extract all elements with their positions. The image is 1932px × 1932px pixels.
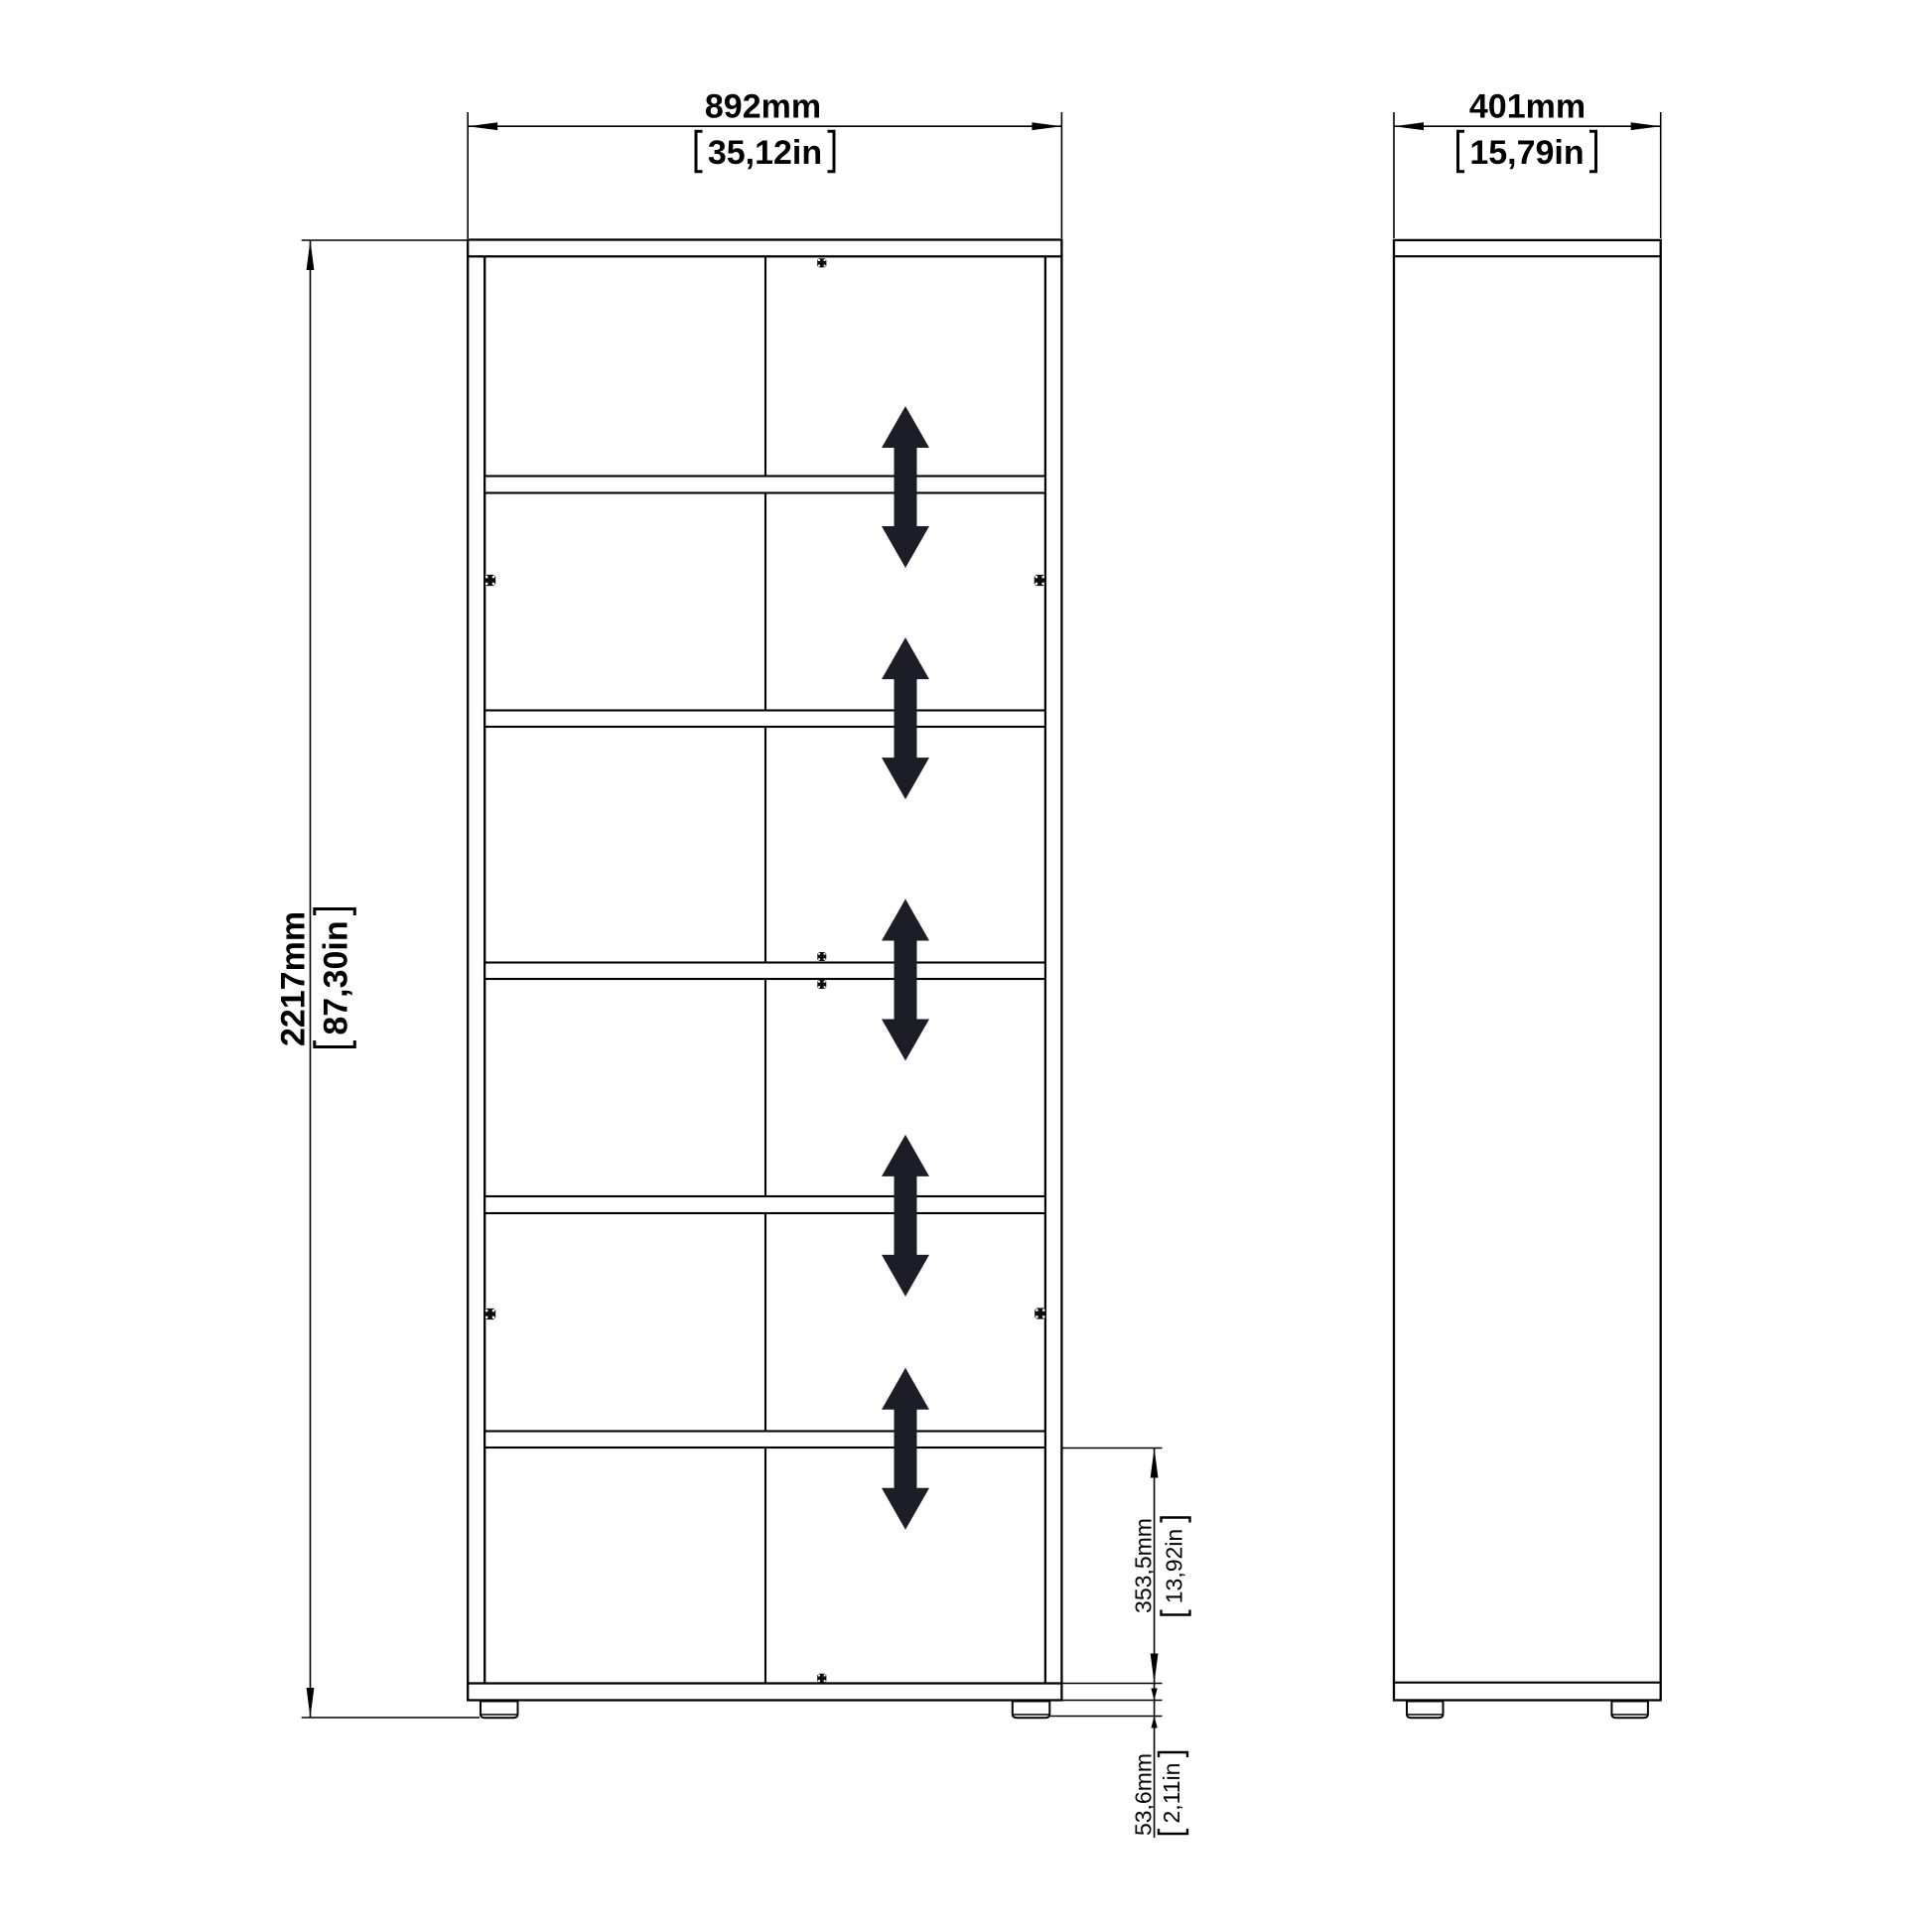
svg-text:53,6mm: 53,6mm [1131,1753,1157,1836]
svg-text:892mm: 892mm [705,88,821,126]
svg-text:15,79in: 15,79in [1469,134,1584,172]
svg-text:401mm: 401mm [1469,88,1586,126]
svg-text:87,30in: 87,30in [318,920,355,1035]
svg-text:35,12in: 35,12in [708,134,822,172]
svg-text:353,5mm: 353,5mm [1131,1518,1157,1613]
svg-text:13,92in: 13,92in [1162,1529,1187,1603]
svg-text:2,11in: 2,11in [1159,1763,1184,1824]
svg-text:2217mm: 2217mm [275,911,313,1046]
